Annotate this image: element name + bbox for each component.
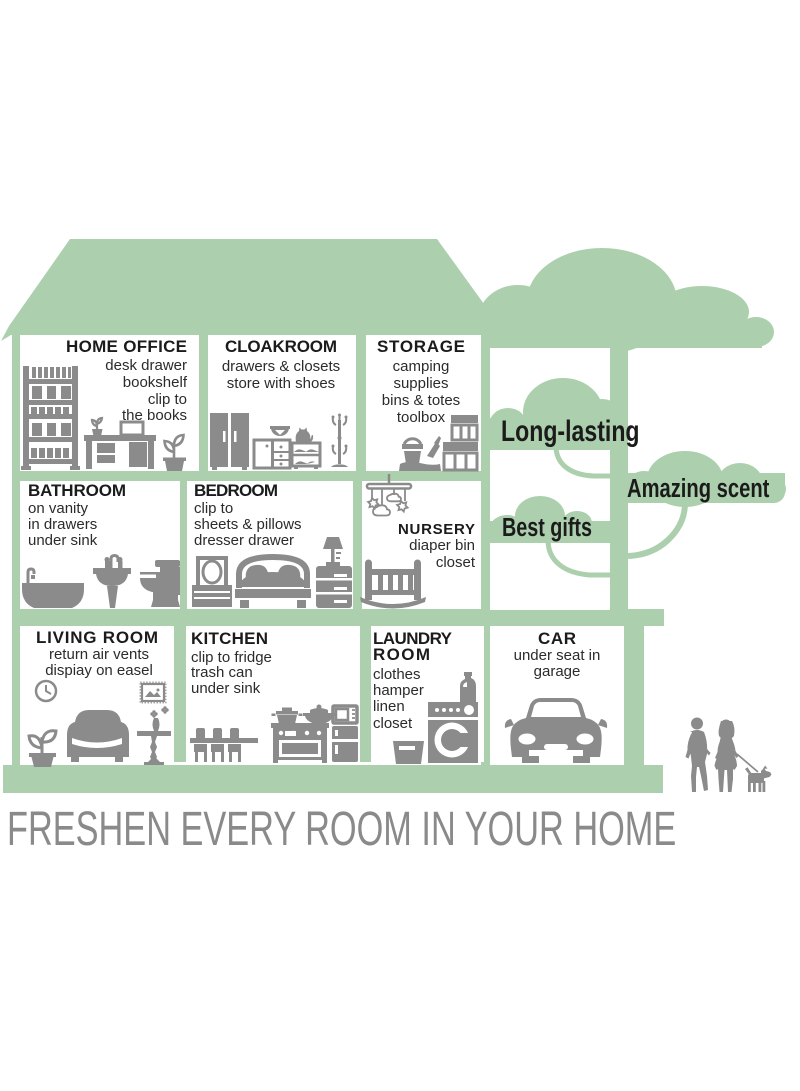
svg-text:dispiay on easel: dispiay on easel [45,662,153,679]
svg-text:bookshelf: bookshelf [123,374,188,391]
svg-text:HOME OFFICE: HOME OFFICE [66,337,187,356]
svg-text:on vanity: on vanity [28,500,89,517]
svg-text:drawers & closets: drawers & closets [222,358,340,375]
svg-text:STORAGE: STORAGE [377,337,465,356]
svg-text:ROOM: ROOM [373,645,430,664]
svg-text:closet: closet [436,554,476,571]
svg-text:KITCHEN: KITCHEN [191,629,268,648]
svg-text:Long-lasting: Long-lasting [501,414,640,448]
svg-text:supplies: supplies [393,375,448,392]
svg-text:under seat in: under seat in [514,647,601,664]
svg-text:trash can: trash can [191,664,253,681]
svg-text:Amazing scent: Amazing scent [627,474,770,503]
svg-text:NURSERY: NURSERY [398,521,475,538]
svg-text:CLOAKROOM: CLOAKROOM [225,337,337,356]
svg-text:in drawers: in drawers [28,516,97,533]
svg-text:LIVING ROOM: LIVING ROOM [36,628,158,647]
svg-text:dresser drawer: dresser drawer [194,532,294,549]
svg-text:closet: closet [373,715,413,732]
svg-text:clip to: clip to [148,391,187,408]
svg-text:return air vents: return air vents [49,646,149,663]
svg-text:linen: linen [373,698,405,715]
svg-text:clothes: clothes [373,666,421,683]
svg-text:sheets & pillows: sheets & pillows [194,516,302,533]
svg-text:FRESHEN EVERY ROOM IN YOUR HOM: FRESHEN EVERY ROOM IN YOUR HOME [7,801,676,855]
svg-text:store with shoes: store with shoes [227,375,335,392]
svg-text:diaper bin: diaper bin [409,537,475,554]
svg-text:camping: camping [393,358,450,375]
svg-text:garage: garage [534,663,581,680]
svg-text:BEDROOM: BEDROOM [194,481,278,500]
svg-text:BATHROOM: BATHROOM [28,481,126,500]
svg-text:Best gifts: Best gifts [502,512,592,541]
svg-text:clip to: clip to [194,500,233,517]
svg-text:hamper: hamper [373,682,424,699]
svg-text:under sink: under sink [191,680,261,697]
svg-text:desk drawer: desk drawer [105,357,187,374]
svg-text:toolbox: toolbox [397,409,446,426]
svg-text:CAR: CAR [538,629,576,648]
svg-text:bins & totes: bins & totes [382,392,460,409]
svg-text:under sink: under sink [28,532,98,549]
